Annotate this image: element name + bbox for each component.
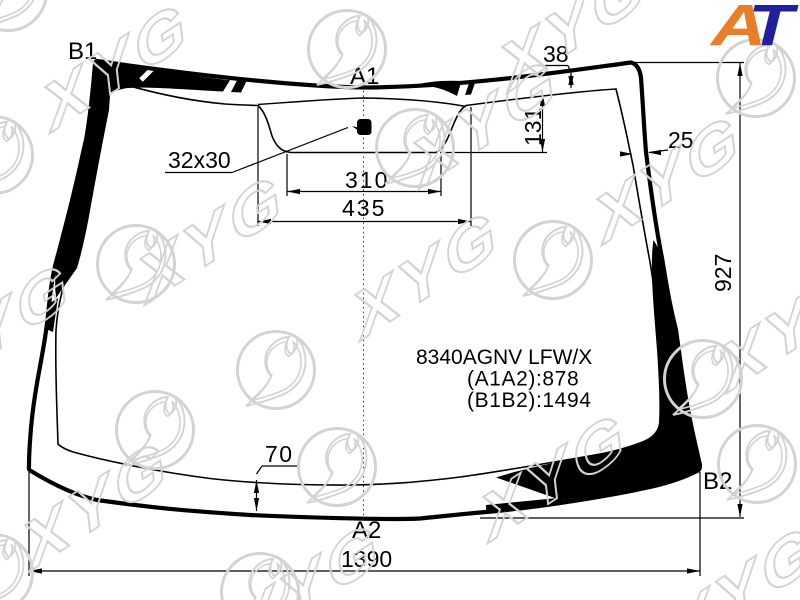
svg-text:(B1B2):1494: (B1B2):1494 bbox=[467, 389, 592, 412]
svg-text:32x30: 32x30 bbox=[168, 147, 231, 173]
svg-text:A: A bbox=[709, 0, 767, 58]
svg-text:70: 70 bbox=[265, 441, 294, 467]
svg-text:8340AGNV LFW/X: 8340AGNV LFW/X bbox=[416, 346, 592, 369]
svg-text:927: 927 bbox=[710, 254, 736, 292]
svg-text:(A1A2):878: (A1A2):878 bbox=[467, 368, 579, 391]
svg-text:435: 435 bbox=[342, 195, 386, 221]
